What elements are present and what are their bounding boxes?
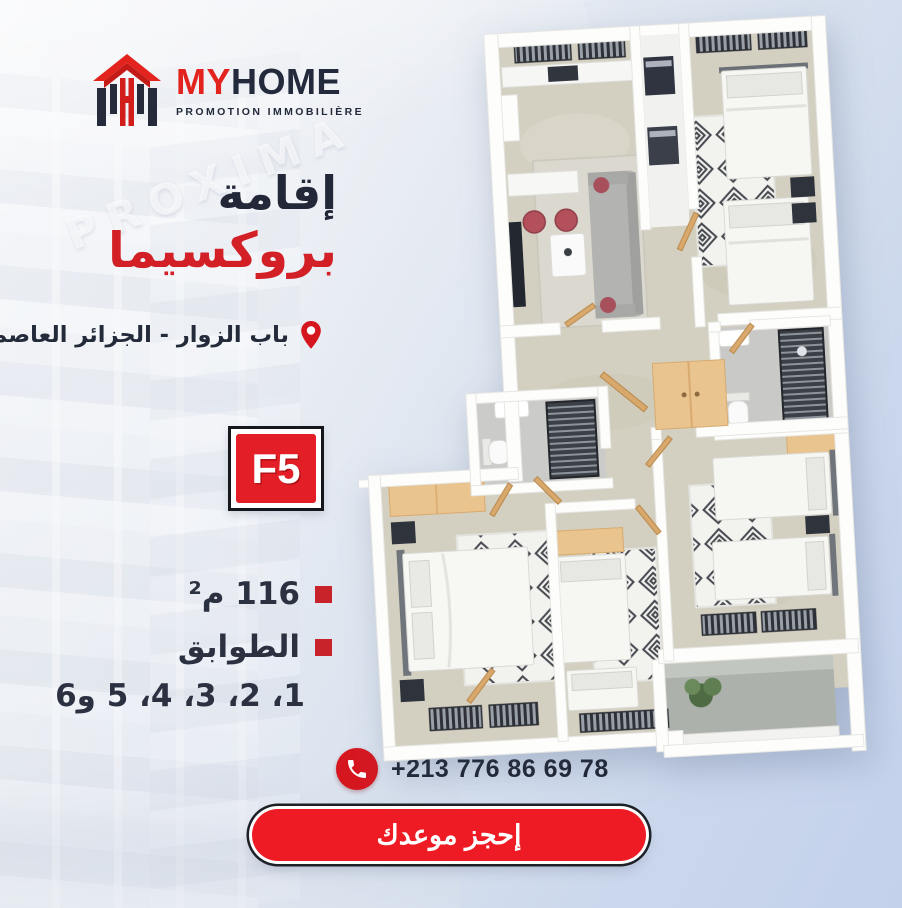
location-row: باب الزوار - الجزائر العاصمة — [22, 320, 324, 350]
floor-plan — [334, 8, 875, 787]
location-pin-icon — [298, 320, 324, 350]
floor-plan-drawing — [334, 8, 875, 787]
spec-area-label: 116 م² — [188, 576, 300, 612]
location-text: باب الزوار - الجزائر العاصمة — [0, 322, 289, 348]
book-appointment-label: إحجز موعدك — [377, 820, 522, 851]
unit-type-label: F5 — [251, 445, 300, 493]
headline-line2: بروكسيما — [35, 224, 337, 279]
unit-type-badge: F5 — [228, 426, 324, 511]
spec-floors-row: الطوابق — [40, 629, 332, 665]
red-square-bullet — [315, 586, 332, 603]
flyer-canvas: PROXIMA MYHOME PROMOTION IMMOBILIÈRE إقا… — [0, 0, 902, 908]
myhome-logo: MYHOME PROMOTION IMMOBILIÈRE — [88, 48, 364, 130]
logo-word-my: MY — [176, 61, 231, 102]
book-appointment-button[interactable]: إحجز موعدك — [252, 809, 646, 861]
phone-icon — [336, 748, 378, 790]
floors-numbers: 1، 2، 3، 4، 5 و6 — [30, 678, 330, 714]
headline-line1: إقامة — [35, 168, 337, 220]
red-square-bullet — [315, 639, 332, 656]
residence-headline: إقامة بروكسيما — [35, 168, 337, 278]
logo-tagline: PROMOTION IMMOBILIÈRE — [176, 106, 364, 118]
house-logo-icon — [88, 48, 166, 130]
logo-word-home: HOME — [231, 61, 341, 102]
spec-floors-label: الطوابق — [178, 629, 300, 665]
spec-area-row: 116 م² — [40, 576, 332, 612]
